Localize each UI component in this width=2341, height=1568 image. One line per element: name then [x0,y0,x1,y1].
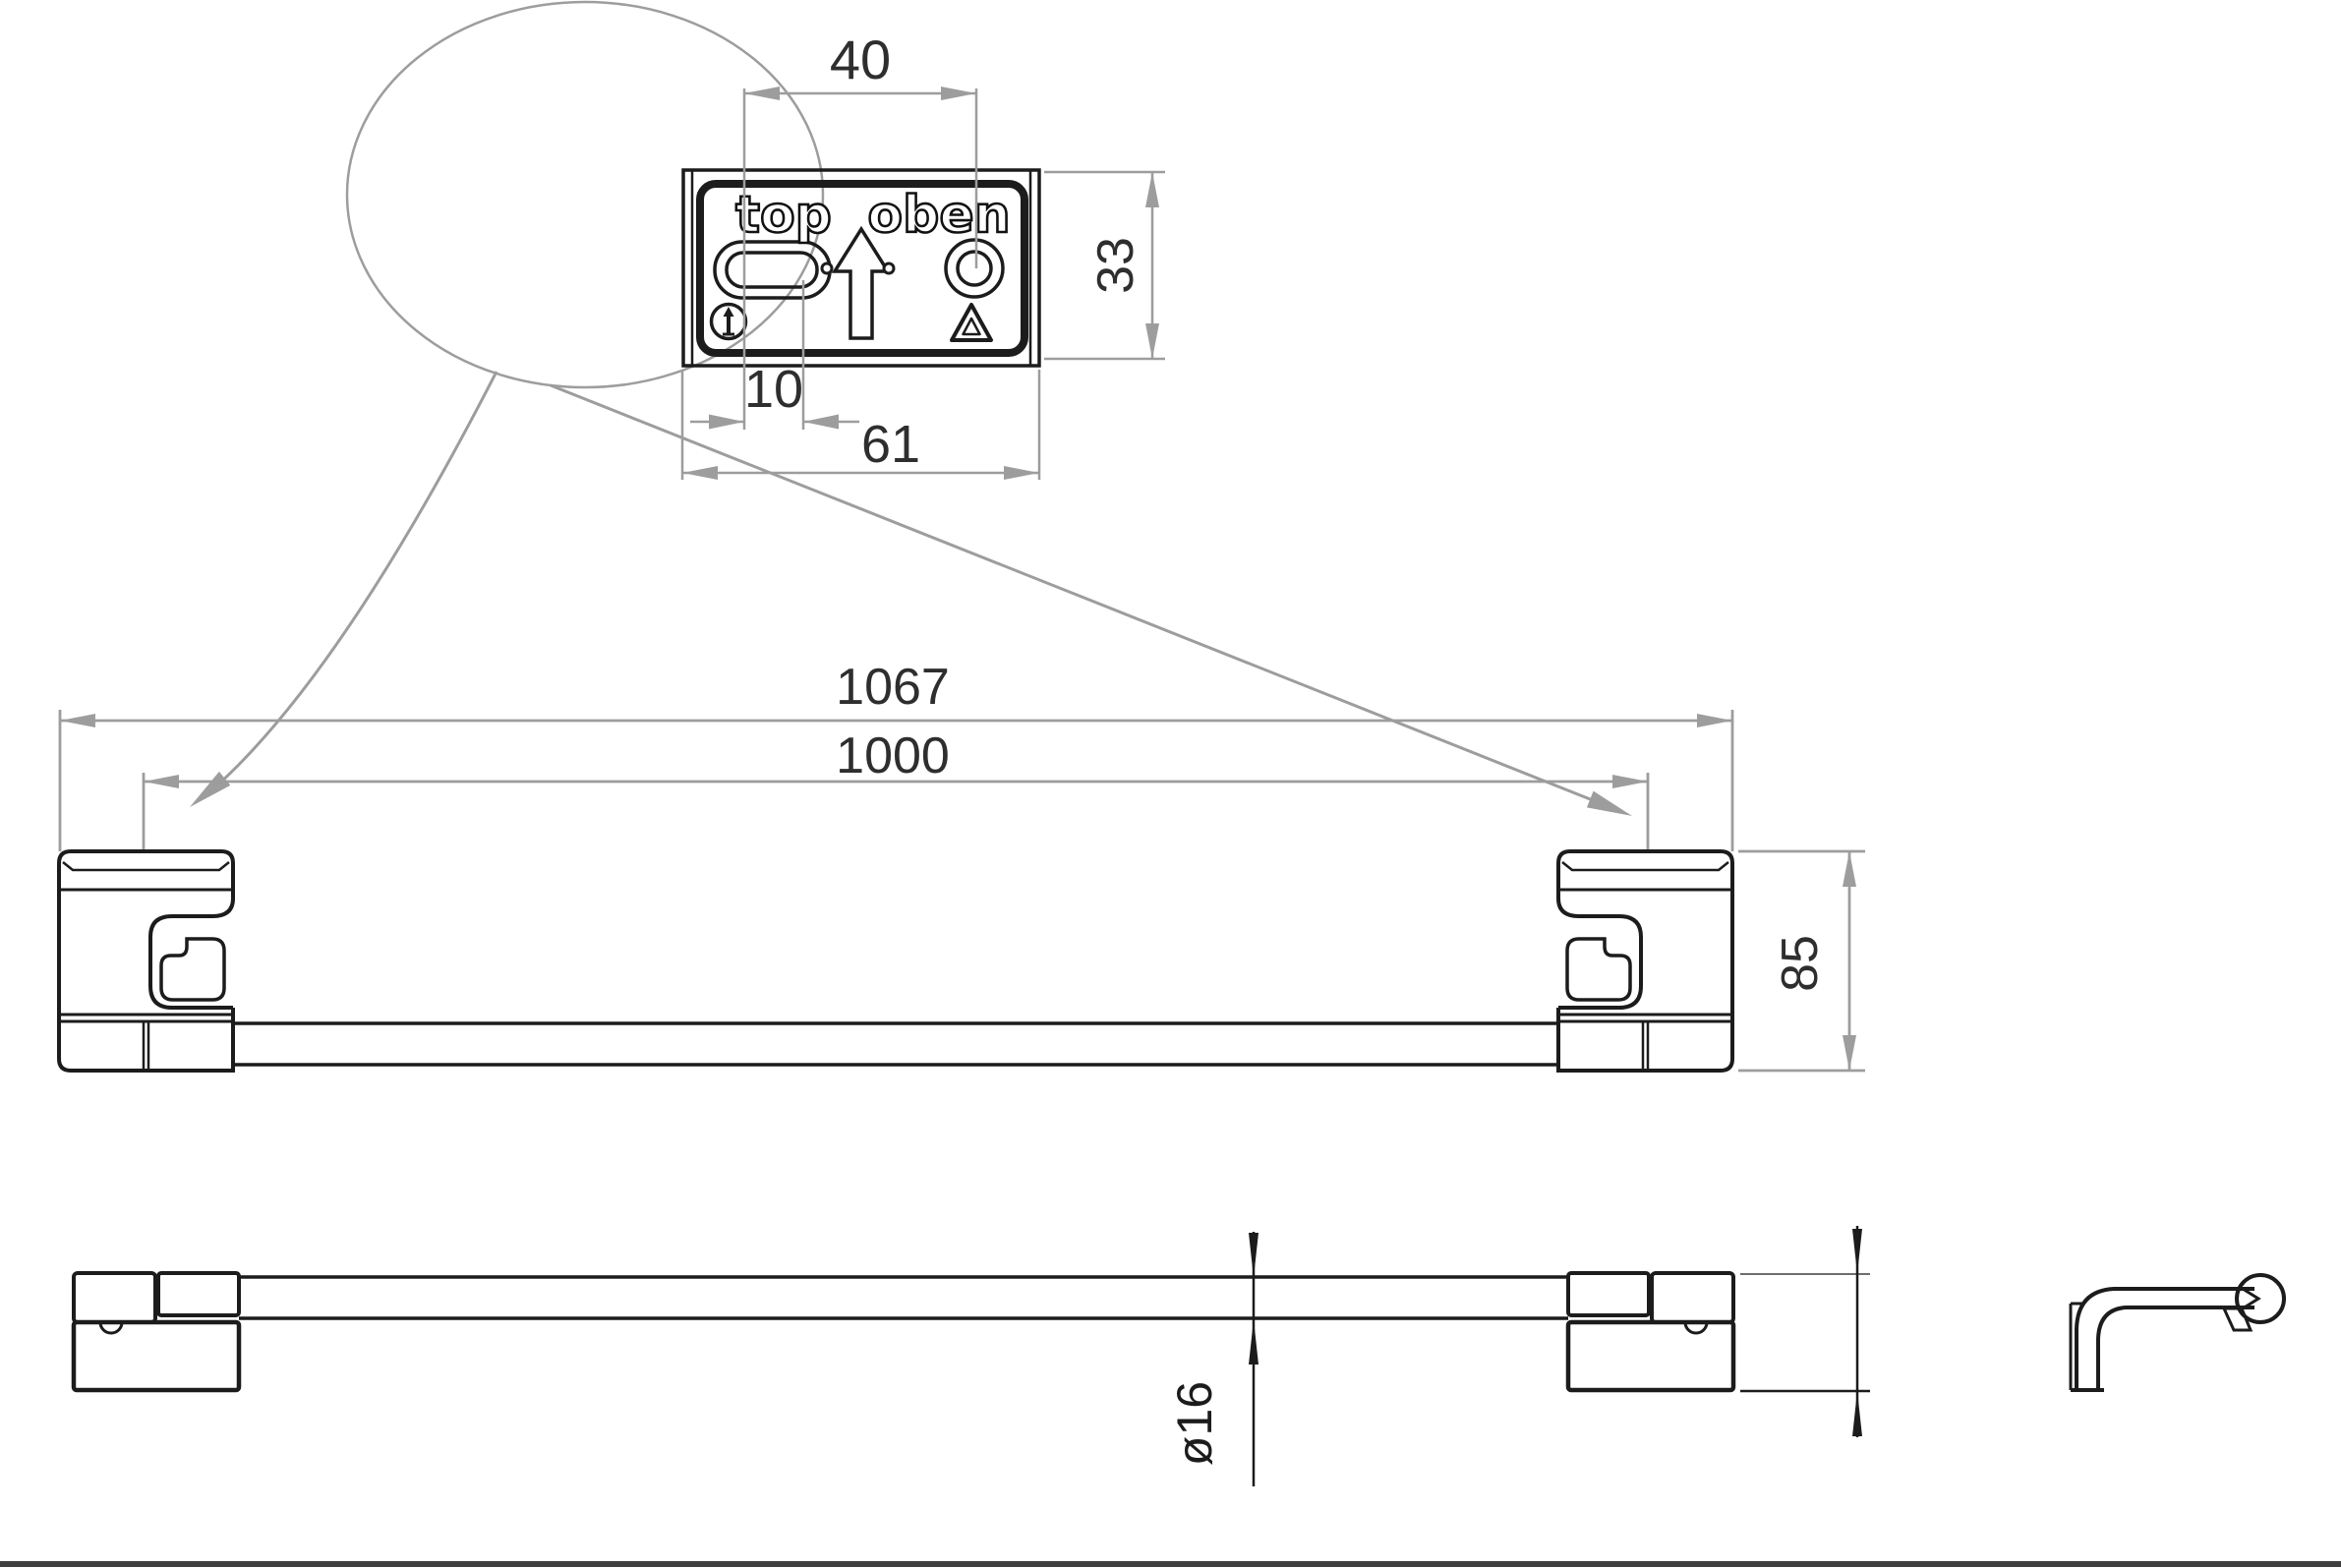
technical-drawing: top oben 40 33 10 61 [0,0,2341,1568]
dim-10-label: 10 [744,360,803,419]
detail-leader-left [203,372,497,798]
leader-arrow-left-icon [184,772,230,814]
dim-33-label: 33 [1087,237,1144,294]
round-hole-inner [958,252,991,285]
round-hole-outer [946,240,1003,297]
front-bracket-right [1558,851,1732,1071]
dim-85-label: 85 [1772,935,1829,992]
dim-bar-diameter [1249,1232,1258,1486]
dim-1067-label: 1067 [836,659,950,716]
dim-bracket-depth-unlabeled [1740,1226,1870,1437]
detail-plate: top oben [683,170,1039,366]
plate-label-oben: oben [867,186,1010,245]
arrow-dot-left [822,263,832,273]
drawing-sheet: top oben 40 33 10 61 [0,0,2341,1568]
front-view [59,851,1732,1071]
recycle-icon [952,305,991,340]
orientation-icon [712,305,746,339]
end-view [2071,1275,2284,1390]
dim-diameter-label: ø16 [1167,1381,1222,1466]
dim-40-label: 40 [830,29,891,90]
dim-61-label: 61 [861,415,920,474]
plate-label-top: top [735,186,832,245]
bottom-bracket-left [74,1273,239,1390]
sheet-border-bottom [0,1561,2341,1567]
up-arrow-icon [835,229,888,338]
leader-arrow-right-icon [1587,791,1635,825]
bottom-bracket-right [1568,1273,1733,1390]
dim-1000-label: 1000 [836,727,950,784]
bottom-view [74,1226,1870,1486]
arrow-dot-right [884,263,894,273]
front-bracket-left [59,851,233,1071]
detail-leader-right [551,385,1617,810]
